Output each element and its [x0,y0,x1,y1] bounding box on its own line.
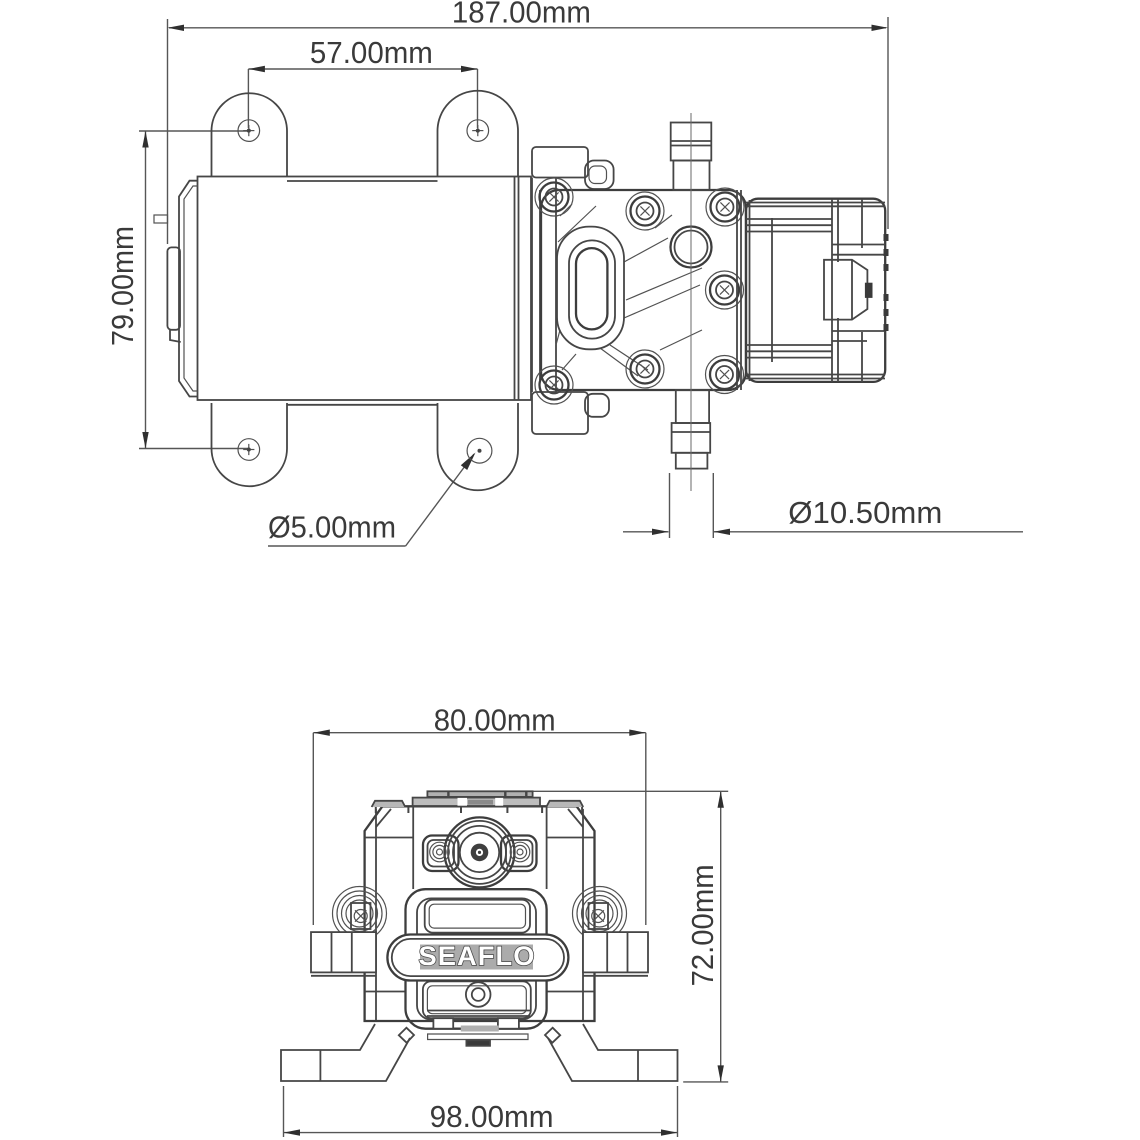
svg-text:Ø5.00mm: Ø5.00mm [268,510,396,545]
svg-text:187.00mm: 187.00mm [452,0,591,30]
svg-text:Ø10.50mm: Ø10.50mm [788,495,942,530]
svg-text:72.00mm: 72.00mm [685,864,720,986]
svg-text:SEAFLO: SEAFLO [419,941,536,971]
svg-text:79.00mm: 79.00mm [105,226,140,346]
svg-text:98.00mm: 98.00mm [430,1099,554,1134]
svg-text:57.00mm: 57.00mm [310,35,433,70]
